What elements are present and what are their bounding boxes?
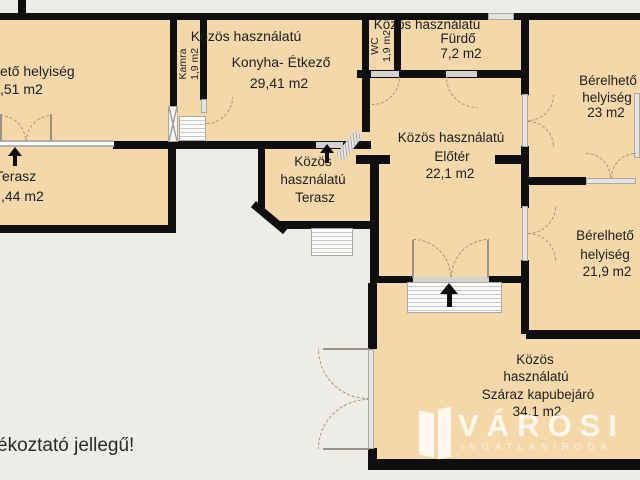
wall-stub-top-left: [18, 0, 26, 14]
konyha-area: 29,41 m2: [250, 75, 308, 91]
kapubejaro-label-3: Száraz kapubejáró: [482, 387, 595, 403]
up-arrow-icon: [440, 283, 458, 307]
window-room-top-left: [0, 140, 114, 147]
room-top-left-area: ,51 m2: [0, 81, 43, 97]
terasz-mid-label-1: Közös: [294, 154, 332, 170]
terasz-left-label: Terasz: [0, 168, 36, 184]
staircase-kamra: [179, 116, 206, 141]
door-leaf: [50, 114, 52, 141]
door-room23-room219: [586, 178, 636, 184]
door-leaf: [0, 114, 2, 141]
door-leaf: [412, 240, 414, 278]
room219-label-2: helyiség: [580, 247, 630, 263]
door-leaf: [323, 348, 369, 350]
konyha-label-2: Konyha- Étkező: [232, 54, 331, 70]
room23-label-2: helyiség: [582, 90, 632, 106]
konyha-label-1: Közös használatú: [191, 28, 302, 44]
wall-eloter-right-stub: [495, 155, 529, 164]
wall-room23-left-c: [521, 260, 529, 334]
door-top-wall: [488, 13, 514, 20]
floor-plan: ető helyiség ,51 m2 Kamra 1,9 m2 Közös h…: [0, 0, 640, 480]
wall-room23-room219: [528, 177, 586, 185]
terasz-left-area: ,44 m2: [1, 188, 44, 204]
wc-area: 1,9 m2: [381, 30, 393, 62]
disclaimer-note: ékoztató jellegű!: [0, 435, 134, 457]
eloter-label-1: Közös használatú: [398, 130, 505, 146]
wall-terasz-right: [168, 148, 176, 232]
brand-logo-icon: [419, 410, 434, 457]
door-leaf: [487, 240, 489, 278]
staircase-midterasz: [311, 228, 353, 256]
kapubejaro-label-1: Közös: [516, 352, 554, 368]
kamra-label: Kamra 1,9 m2: [177, 48, 201, 80]
room219-area: 21,9 m2: [583, 264, 632, 280]
wall-top: [0, 13, 640, 20]
room-top-left-label: ető helyiség: [0, 63, 75, 79]
wall-eloter-left-low: [370, 157, 379, 283]
furdo-label-2: Fürdő: [440, 31, 475, 47]
wall-kamra-left: [170, 19, 177, 108]
wall-room23-left-a: [521, 19, 529, 95]
kapubejaro-label-2: használatú: [503, 369, 568, 385]
door-room-top-left-to-konyha: [168, 106, 178, 142]
wall-terasz-bottom: [0, 225, 176, 233]
door-leaf: [323, 448, 369, 450]
door-kapubejaro-double: [368, 349, 374, 449]
door-arc: [318, 349, 368, 399]
terasz-left-floor: [0, 141, 176, 231]
furdo-area: 7,2 m2: [440, 46, 481, 62]
room23-label-1: Bérelhető: [579, 73, 637, 89]
room219-label-1: Bérelhető: [576, 228, 634, 244]
eloter-area: 22,1 m2: [426, 166, 475, 182]
wall-eloter-left-top: [362, 77, 370, 132]
wall-room219-bottom: [526, 330, 640, 339]
kamra-area: 1,9 m2: [189, 48, 201, 80]
up-arrow-icon: [8, 147, 22, 166]
wall-bottom: [368, 459, 640, 470]
door-arc: [318, 399, 368, 449]
wall-kapubejaro-left-top: [368, 283, 377, 349]
eloter-label-2: Előtér: [434, 149, 469, 165]
brand-logo-icon: [438, 407, 451, 460]
room23-area: 23 m2: [587, 105, 625, 121]
wall-midterasz-left: [258, 148, 265, 208]
brand-watermark-subtitle: INGATLANIRODA: [461, 442, 612, 453]
terasz-mid-label-2: használatú: [280, 172, 345, 188]
terasz-mid-label-3: Terasz: [295, 190, 335, 206]
wall-wc-left: [362, 19, 369, 77]
brand-watermark-title: VÁROSI: [458, 408, 625, 444]
window-right-edge: [634, 93, 640, 158]
wc-label: WC 1,9 m2: [369, 30, 393, 62]
